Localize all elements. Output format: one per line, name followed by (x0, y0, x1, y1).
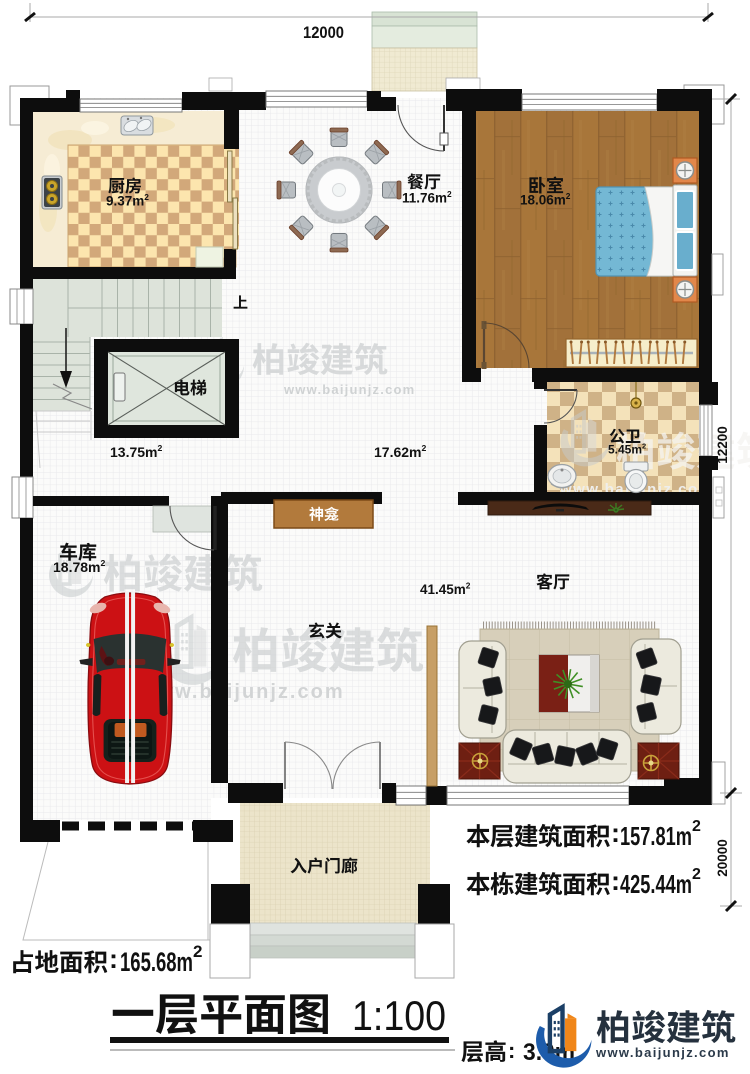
svg-text:165.68m: 165.68m (120, 947, 193, 977)
svg-text::: : (611, 866, 620, 896)
svg-text:2: 2 (193, 942, 202, 961)
svg-text::: : (109, 944, 118, 974)
svg-text:1:100: 1:100 (352, 992, 446, 1039)
svg-text:12000: 12000 (303, 23, 344, 42)
svg-text:18.06m2: 18.06m2 (520, 191, 571, 208)
svg-text:12200: 12200 (715, 426, 730, 464)
svg-text:157.81m: 157.81m (620, 821, 692, 851)
svg-text:17.62m2: 17.62m2 (374, 443, 426, 460)
svg-text:2: 2 (692, 866, 701, 883)
svg-text:www.baijunjz.com: www.baijunjz.com (595, 1045, 730, 1060)
svg-text:2: 2 (692, 818, 701, 835)
svg-text:13.75m2: 13.75m2 (110, 443, 162, 460)
svg-text:5.45m2: 5.45m2 (608, 441, 646, 456)
svg-text:9.37m2: 9.37m2 (106, 192, 149, 209)
svg-text:41.45m2: 41.45m2 (420, 580, 471, 597)
svg-text::: : (508, 1038, 515, 1063)
svg-text::: : (611, 818, 620, 848)
svg-text:18.78m2: 18.78m2 (53, 558, 105, 575)
svg-text:www.baijunjz.com: www.baijunjz.com (283, 382, 415, 397)
svg-text:11.76m2: 11.76m2 (402, 189, 452, 206)
svg-text:20000: 20000 (715, 839, 730, 877)
svg-text:425.44m: 425.44m (620, 869, 692, 899)
